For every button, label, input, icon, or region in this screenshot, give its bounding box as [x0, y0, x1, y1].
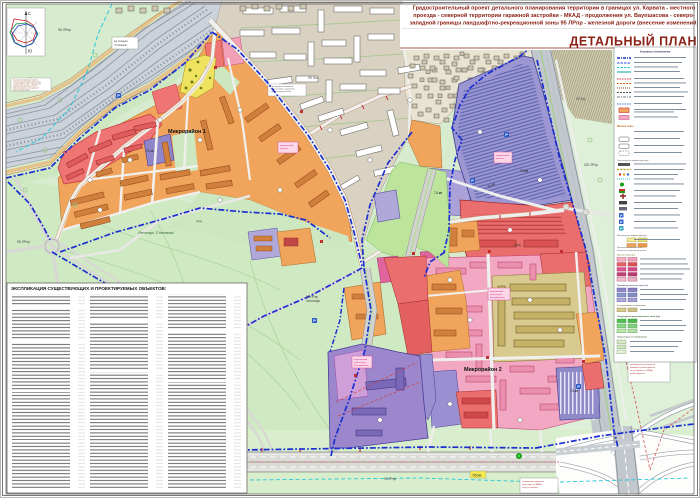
svg-text:согласно решению Мингорисполко: согласно решению Мингорисполкома: [13, 82, 41, 84]
svg-text:проекта детального планировани: проекта детального планирования": [13, 88, 40, 90]
svg-text:выделяемый: выделяемый: [496, 154, 510, 157]
svg-text:объектов и характер застройки: объектов и характер застройки: [617, 249, 646, 252]
svg-text:ЭКСПЛИКАЦИЯ СУЩЕСТВУЮЩИХ И ПРО: ЭКСПЛИКАЦИЯ СУЩЕСТВУЮЩИХ И ПРОЕКТИРУЕМЫХ…: [11, 286, 167, 291]
svg-text:разработки градостроительного: разработки градостроительного: [13, 86, 37, 88]
svg-text:Специального назначения: Специального назначения: [617, 305, 647, 307]
svg-text:P: P: [505, 132, 508, 137]
svg-text:выделяемый: выделяемый: [280, 144, 294, 147]
svg-text:Лесопарк: Лесопарк: [306, 299, 321, 303]
svg-text:обслуживания: обслуживания: [354, 365, 369, 367]
svg-text:Жилые зоны: Жилые зоны: [617, 124, 634, 128]
svg-text:Функциональные зоны по з...: Функциональные зоны по з...: [617, 246, 644, 249]
svg-text:Микрорайон 2: Микрорайон 2: [464, 366, 502, 373]
svg-text:съезд с развязки: съезд с развязки: [522, 487, 538, 489]
svg-text:жд станция: жд станция: [114, 40, 128, 43]
svg-text:95 ЛРпр: 95 ЛРпр: [384, 477, 396, 481]
svg-text:выделяемый: выделяемый: [354, 358, 368, 361]
svg-text:322 ЛРпр: 322 ЛРпр: [584, 163, 598, 167]
svg-text:Градостроительный проект детал: Градостроительный проект детального план…: [413, 5, 696, 12]
svg-text:участок: участок: [280, 148, 288, 150]
svg-text:транспорта на МКАД: транспорта на МКАД: [522, 483, 542, 486]
svg-text:по ул. Карвата на МКАД: по ул. Карвата на МКАД: [630, 369, 653, 372]
svg-text:74-кв: 74-кв: [146, 149, 154, 153]
svg-text:обслуживания: обслуживания: [490, 297, 505, 299]
svg-text:"Степянка": "Степянка": [114, 43, 127, 47]
svg-text:С: С: [28, 11, 31, 16]
svg-text:Территории не занимаемые: Территории не занимаемые: [617, 337, 648, 339]
svg-text:участок для: участок для: [490, 294, 503, 296]
svg-text:развязки в разных уровнях: развязки в разных уровнях: [630, 367, 655, 369]
svg-text:западной границы ландшафтно-ре: западной границы ландшафтно-рекреационно…: [410, 19, 699, 26]
svg-text:размещения транспортной: размещения транспортной: [630, 363, 655, 366]
svg-text:Ландшафтно-рекреационные зоны: Ландшафтно-рекреационные зоны (лр): [617, 315, 660, 318]
svg-text:Граница проектирования принята: Граница проектирования принята: [13, 80, 38, 82]
svg-text:(проектируется): (проектируется): [630, 373, 645, 375]
svg-text:P: P: [117, 93, 120, 98]
svg-text:направление движения: направление движения: [522, 481, 544, 483]
svg-text:P: P: [471, 178, 474, 183]
svg-text:Микрорайон 1: Микрорайон 1: [168, 128, 206, 135]
svg-text:74-кв: 74-кв: [570, 389, 578, 393]
svg-text:Сущ: Сущ: [196, 219, 203, 223]
svg-text:Транспортная инфраструктура: Транспортная инфраструктура: [617, 159, 649, 162]
svg-text:P: P: [313, 318, 316, 323]
svg-text:Жилые зоны (ж): Жилые зоны (ж): [617, 255, 635, 257]
svg-text:95 Жg: 95 Жg: [576, 97, 585, 101]
svg-text:участок для: участок для: [354, 362, 367, 364]
svg-text:Производственные зоны (п): Производственные зоны (п): [617, 285, 648, 287]
svg-text:Инженерная инфраструктура: Инженерная инфраструктура: [617, 234, 648, 237]
svg-text:участок: участок: [496, 158, 504, 160]
svg-text:выделяемый: выделяемый: [490, 290, 504, 293]
svg-text:74-кв: 74-кв: [434, 191, 442, 195]
svg-text:Сущ: Сущ: [514, 243, 521, 247]
svg-text:95 ЛРпр: 95 ЛРпр: [58, 28, 71, 32]
svg-text:P: P: [577, 384, 580, 389]
svg-text:Лесопарк "Степянка": Лесопарк "Степянка": [137, 231, 175, 235]
svg-text:74-кв: 74-кв: [520, 169, 528, 173]
svg-text:95 ЛРпр: 95 ЛРпр: [17, 240, 30, 244]
svg-text:Условные обозначения: Условные обозначения: [640, 50, 671, 54]
svg-text:760м: 760м: [472, 473, 482, 478]
svg-text:95 Жи: 95 Жи: [308, 76, 318, 80]
svg-text:проезда - северной территории: проезда - северной территории гаражной з…: [413, 12, 695, 19]
svg-text:ДЕТАЛЬНЫЙ ПЛАН: ДЕТАЛЬНЫЙ ПЛАН: [569, 34, 697, 49]
